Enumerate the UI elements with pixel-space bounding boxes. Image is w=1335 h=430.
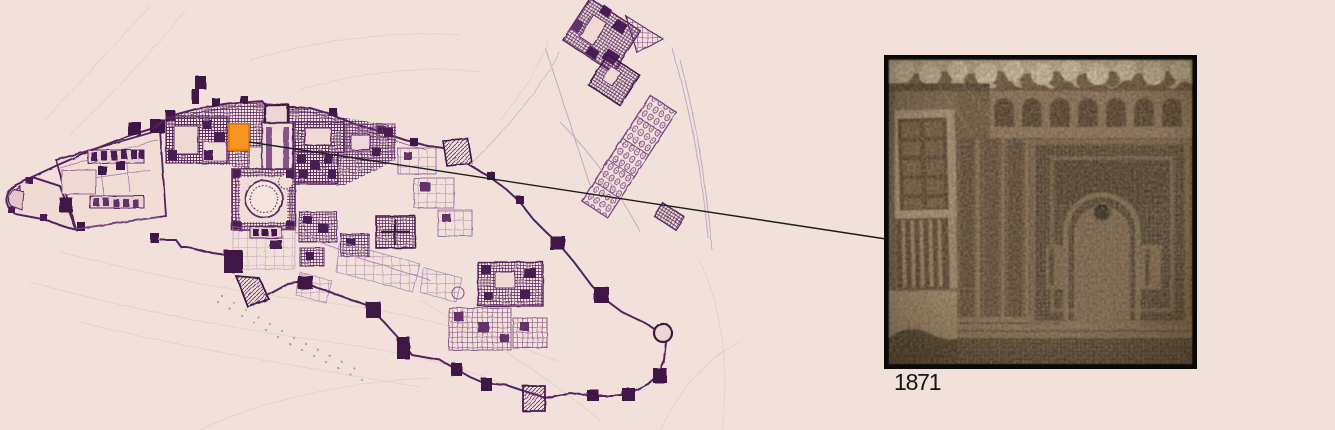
svg-text:1871: 1871	[894, 369, 941, 395]
